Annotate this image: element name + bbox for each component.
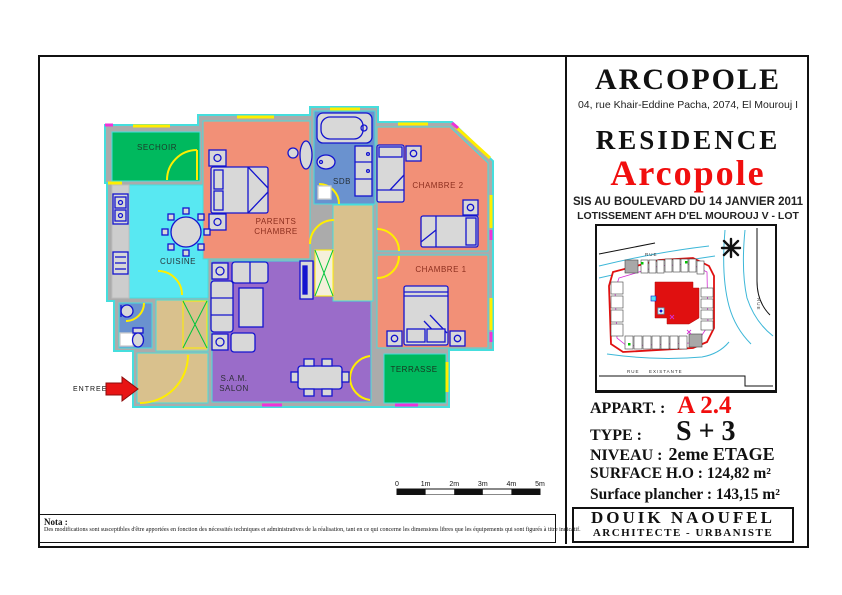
scale-bar: 0 1m 2m 3m 4m 5m [395,481,545,495]
scale-tick-1: 1m [421,481,431,488]
room-terrasse [384,354,446,403]
nota-text: Des modifications sont susceptibles d'êt… [44,527,555,533]
sis-line: SIS AU BOULEVARD DU 14 JANVIER 2011 [571,196,805,208]
surface-row: SURFACE H.O : 124,82 m² [590,465,800,483]
label-entree: ENTREE [73,386,107,393]
scale-tick-2: 2m [449,481,459,488]
niveau-label: NIVEAU : [590,447,662,464]
room-sechoir [112,132,200,181]
north-icon [722,239,740,257]
label-sdb: SDB [333,177,351,186]
label-chambre2: CHAMBRE 2 [412,181,463,190]
label-parents-2: CHAMBRE [254,227,298,236]
brand-title: ARCOPOLE [571,63,805,97]
site-existante: EXISTANTE [649,369,683,374]
brand-address: 04, rue Khair-Eddine Pacha, 2074, El Mou… [571,99,805,111]
label-cuisine: CUISINE [160,257,196,266]
site-rue-bottom: RUE [627,369,640,374]
type-label: TYPE : [590,427,642,444]
niveau-row: NIVEAU :2eme ETAGE [590,444,800,465]
plancher-label: Surface plancher : [590,486,712,503]
niveau-value: 2eme ETAGE [668,444,774,464]
scale-tick-3: 3m [478,481,488,488]
kitchen-stove [113,252,128,274]
kitchen-sink [113,194,128,224]
drawing-sheet: SECHOIR CUISINE PARENTS CHAMBRE SDB CHAM… [0,0,842,595]
label-chambre1: CHAMBRE 1 [415,265,466,274]
plancher-row: Surface plancher : 143,15 m² [590,486,800,504]
label-sam-1: S.A.M. [220,374,247,383]
site-building [655,282,699,324]
plancher-value: 143,15 m² [716,486,780,503]
scale-tick-4: 4m [507,481,517,488]
appart-value: A 2.4 [677,392,731,419]
scale-tick-0: 0 [395,481,399,488]
architect-name: DOUIK NAOUFEL [574,509,792,527]
appart-label: APPART. : [590,400,665,417]
label-terrasse: TERRASSE [390,365,437,374]
residence-name: Arcopole [571,152,805,194]
hall-central [333,205,373,301]
washbasin [317,155,335,169]
surface-label: SURFACE H.O : [590,465,703,482]
architect-title: ARCHITECTE - URBANISTE [574,527,792,539]
site-plan: RUE RUE RUE EXISTANTE [595,224,777,393]
surface-value: 124,82 m² [707,465,771,482]
site-rue-top: RUE [645,252,658,257]
floor-drain [318,186,331,199]
label-parents-1: PARENTS [256,217,297,226]
site-rue-right: RUE [756,298,761,311]
nota-box: Nota : Des modifications sont susceptibl… [38,514,556,543]
nota-label: Nota : [44,517,555,527]
bath-cabinet [355,146,372,196]
floor-plan: SECHOIR CUISINE PARENTS CHAMBRE SDB CHAM… [55,95,555,495]
hall-entry [137,353,208,403]
bathtub [317,113,372,143]
tv-cabinet [300,261,313,299]
label-sechoir: SECHOIR [137,143,177,152]
type-value: S + 3 [676,416,736,447]
label-sam-2: SALON [219,384,249,393]
architect-box: DOUIK NAOUFEL ARCHITECTE - URBANISTE [572,507,794,543]
scale-tick-5: 5m [535,481,545,488]
